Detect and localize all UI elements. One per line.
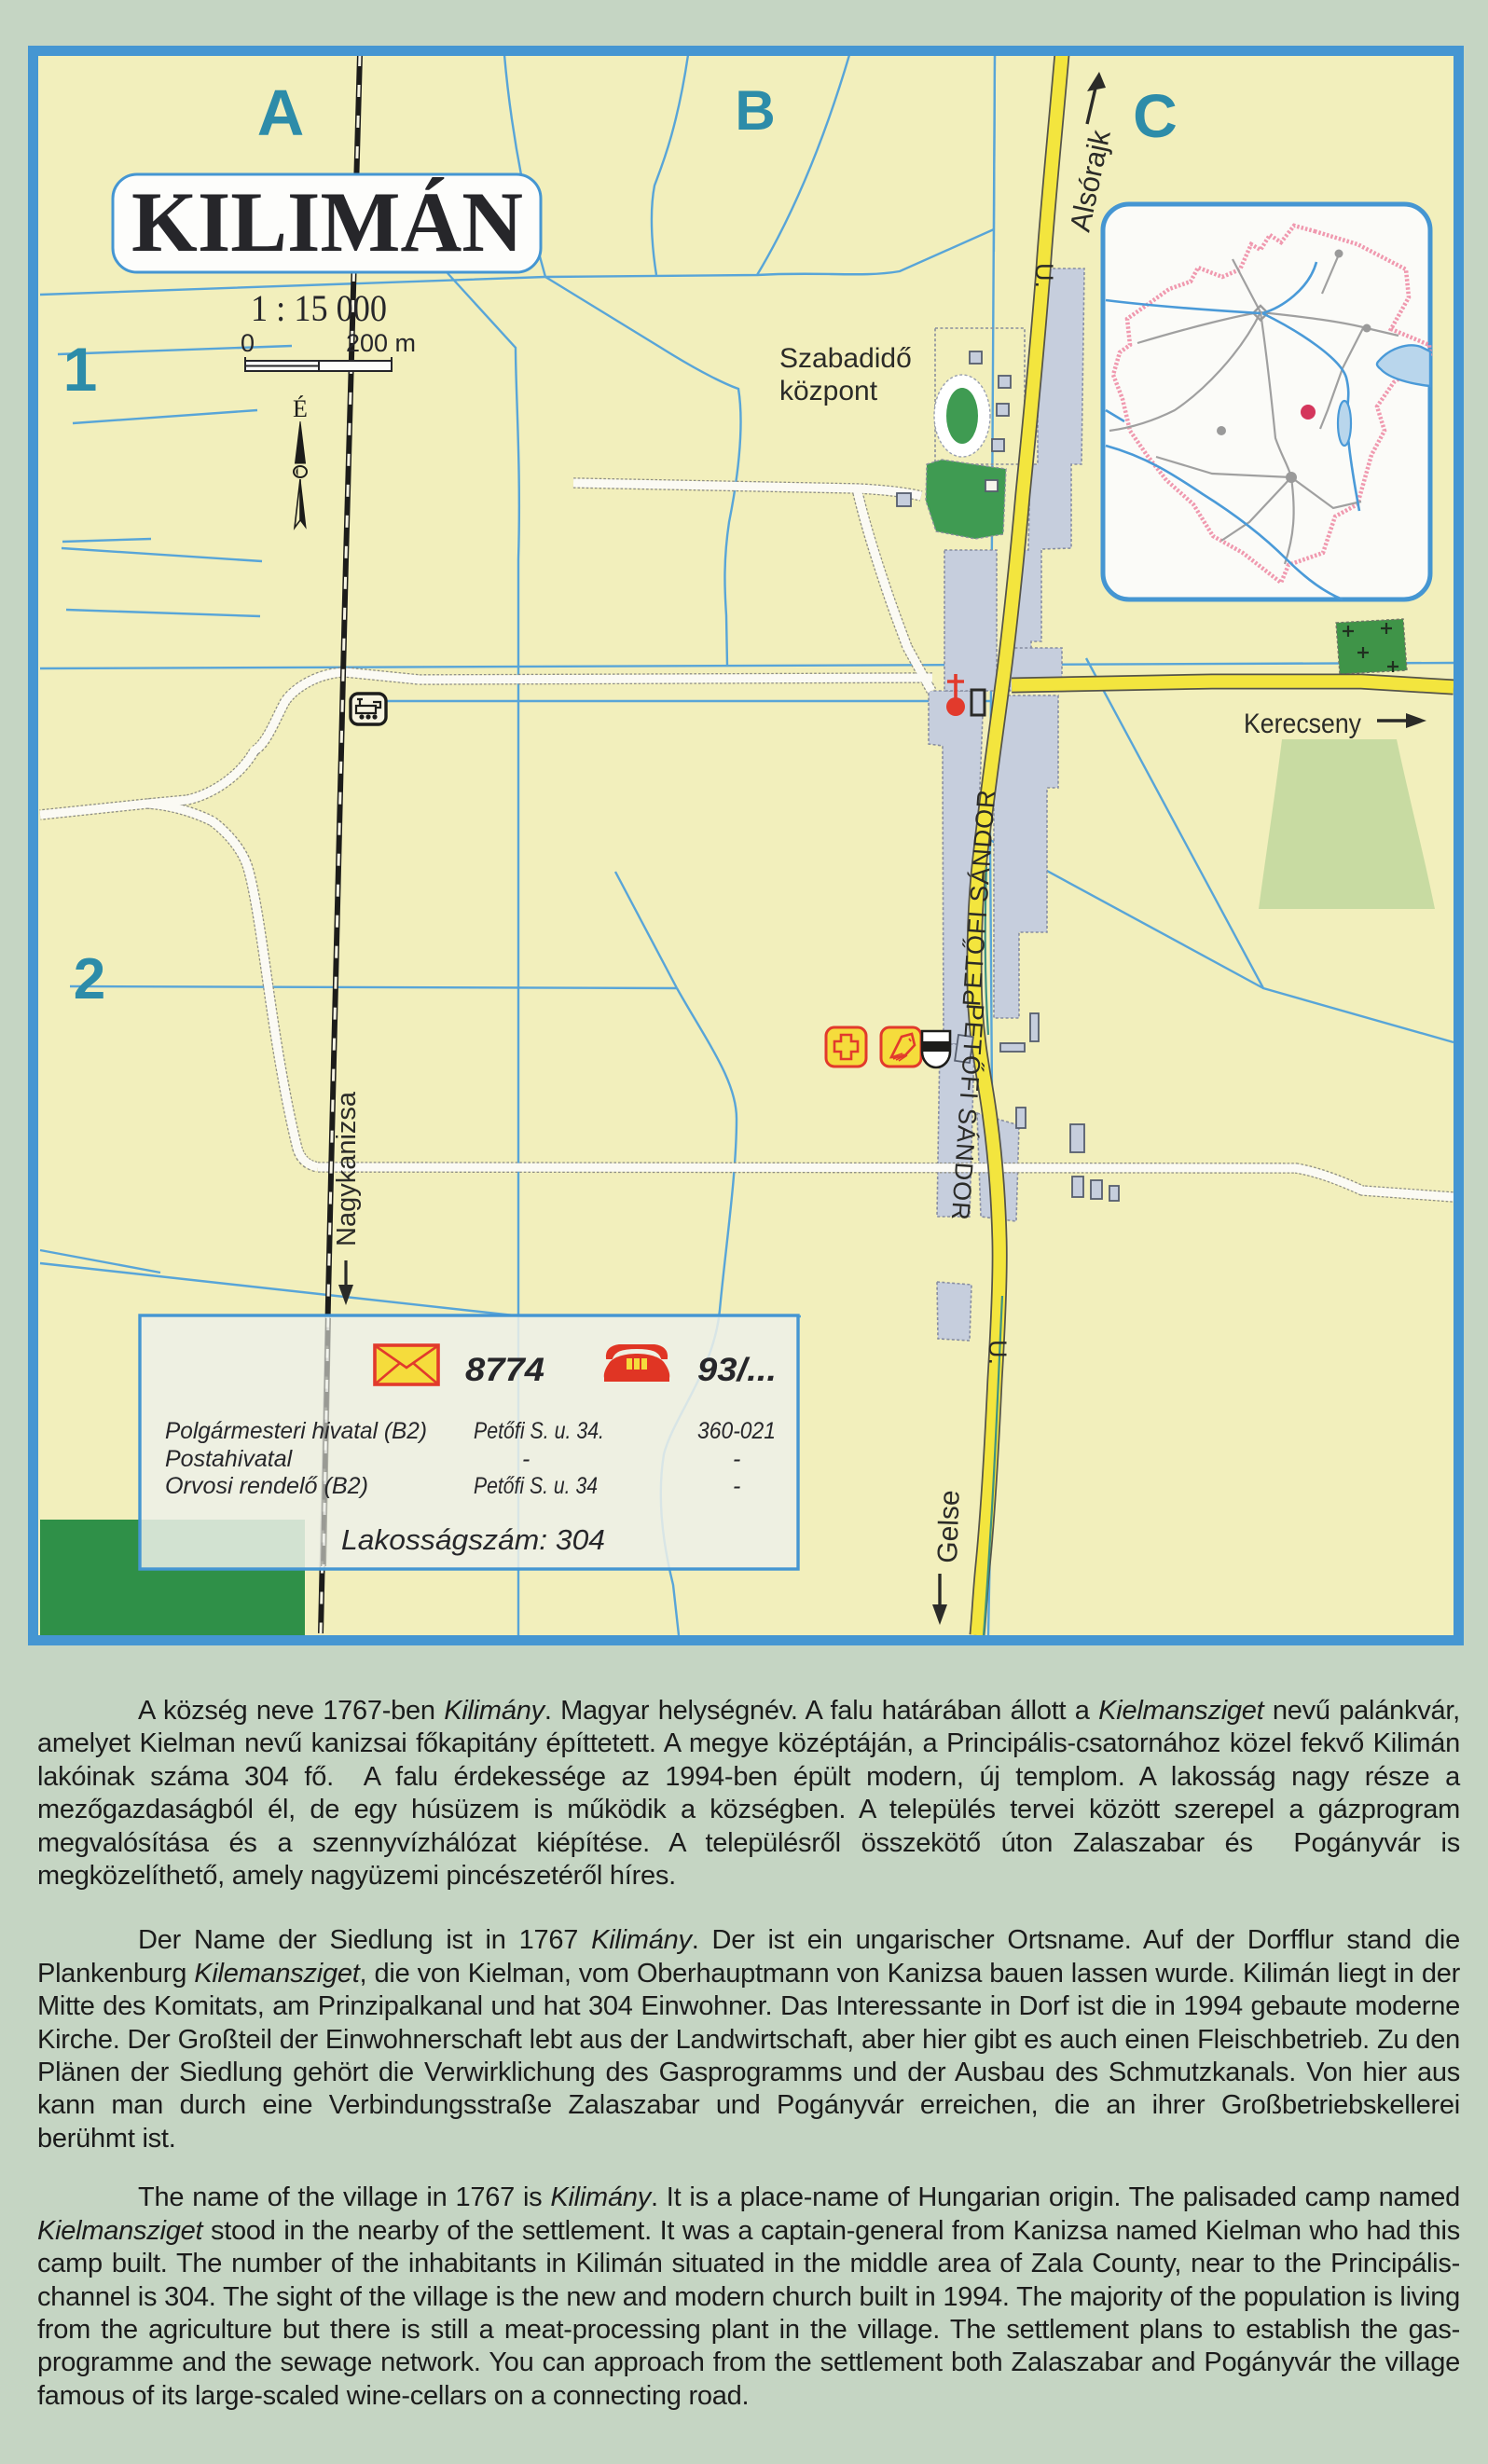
svg-text:Lakosságszám: 304: Lakosságszám: 304 bbox=[341, 1523, 605, 1556]
svg-text:Kerecseny: Kerecseny bbox=[1244, 709, 1361, 739]
svg-text:Orvosi rendelő (B2): Orvosi rendelő (B2) bbox=[165, 1473, 368, 1499]
svg-text:8774: 8774 bbox=[465, 1352, 544, 1388]
svg-text:2: 2 bbox=[74, 947, 105, 1012]
svg-text:-: - bbox=[733, 1446, 740, 1472]
svg-text:Polgármesteri hivatal (B2): Polgármesteri hivatal (B2) bbox=[165, 1418, 427, 1444]
svg-text:C: C bbox=[1133, 81, 1178, 150]
svg-text:Szabadidő: Szabadidő bbox=[779, 343, 912, 374]
svg-text:360-021: 360-021 bbox=[697, 1418, 776, 1444]
svg-text:93/...: 93/... bbox=[697, 1352, 777, 1388]
svg-text:É: É bbox=[293, 395, 308, 422]
svg-text:Postahivatal: Postahivatal bbox=[165, 1446, 294, 1472]
svg-text:200 m: 200 m bbox=[346, 329, 416, 357]
svg-text:Nagykanizsa: Nagykanizsa bbox=[332, 1091, 362, 1246]
svg-text:B: B bbox=[735, 79, 775, 142]
svg-text:0: 0 bbox=[241, 329, 255, 357]
svg-text:-: - bbox=[733, 1473, 740, 1499]
svg-text:A: A bbox=[257, 76, 305, 149]
svg-text:1: 1 bbox=[63, 335, 98, 404]
svg-text:1 : 15 000: 1 : 15 000 bbox=[251, 287, 387, 329]
svg-text:U.: U. bbox=[984, 1340, 1012, 1365]
svg-text:Gelse: Gelse bbox=[932, 1490, 966, 1563]
svg-text:KILIMÁN: KILIMÁN bbox=[131, 174, 523, 269]
svg-text:központ: központ bbox=[779, 376, 878, 406]
svg-text:U.: U. bbox=[1030, 263, 1058, 288]
svg-text:-: - bbox=[522, 1446, 530, 1472]
svg-text:Petőfi S. u. 34.: Petőfi S. u. 34. bbox=[474, 1418, 604, 1444]
svg-text:Petőfi S. u. 34: Petőfi S. u. 34 bbox=[474, 1473, 598, 1499]
